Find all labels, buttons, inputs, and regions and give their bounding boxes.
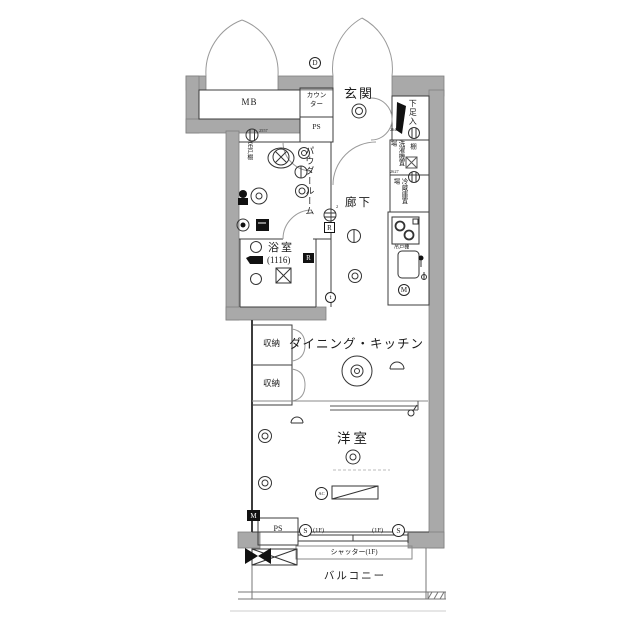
entrance-double-doors [333, 18, 393, 76]
balcony-label: バルコニー [296, 571, 414, 583]
boxed-m-marker: M [247, 510, 260, 521]
kitchen-hanging-cupboard-label: 吊戸棚 [394, 245, 409, 251]
room-dome-light-icon [291, 417, 303, 423]
faucet-black-icon [239, 190, 247, 198]
dk-dome-light-icon [390, 362, 404, 369]
mb-double-doors [206, 20, 278, 76]
fridge-place-label: 冷蔵庫置場 [391, 178, 407, 204]
storage-2-label: 収納 [252, 379, 291, 389]
fridge-tap-icon [409, 172, 420, 183]
circled-d-letter: D [312, 59, 317, 67]
powder-room-label: パウダールーム [304, 146, 314, 228]
s-right-letter: S [396, 526, 400, 535]
dk-ceiling-light-icon [342, 356, 372, 386]
circled-m-marker: M [398, 284, 410, 296]
floor-plan: MB カウン ター PS 玄関 下足入 吊戸棚 パウダールーム 廊下 洗濯機置場… [0, 0, 640, 640]
room-wall-light1-icon [259, 430, 272, 443]
meter-box-label: MB [199, 97, 300, 107]
hall-light-icon [349, 270, 362, 283]
floor-right-label: (1F) [372, 527, 383, 534]
fridge-code: 2627 [390, 170, 399, 175]
stove-icon [392, 217, 419, 244]
bath-light-icon [251, 242, 262, 253]
bath-r-marker: R [303, 253, 314, 263]
circled-t-letter: t [330, 294, 332, 301]
dining-kitchen-label: ダイニング・キッチン [289, 337, 424, 351]
wall-bottom-left [238, 532, 260, 548]
washer-place-label: 洗濯機置場 [388, 140, 404, 166]
ac-marker: AC [315, 487, 328, 500]
hall-r-marker: R [324, 222, 335, 233]
shutter-label: シャッター(1F) [297, 548, 411, 556]
entrance-light-icon [352, 104, 366, 118]
sink-icon [398, 251, 419, 278]
s-left-letter: S [303, 526, 307, 535]
western-room-label: 洋室 [337, 431, 370, 447]
counter-label: カウン ター [300, 91, 333, 109]
bathroom-module-label: (1116) [267, 255, 290, 265]
hallway-label: 廊下 [345, 197, 372, 210]
storage-1-label: 収納 [252, 339, 291, 349]
shoe-cabinet-doors [371, 98, 392, 140]
walls [186, 76, 444, 548]
shoe-cabinet-label: 下足入 [408, 99, 417, 139]
ps-upper-label: PS [300, 123, 333, 132]
washlet-panel-icon [256, 219, 269, 231]
boxed-m-letter: M [250, 512, 256, 520]
ps-lower-label: PS [258, 524, 298, 533]
bath-r-letter: R [306, 254, 311, 262]
room-light-icon [346, 450, 360, 464]
wall-right [429, 90, 444, 548]
entrance-hall-door [333, 142, 376, 185]
washer-code: 2641 [390, 128, 399, 133]
washbasin-icon [251, 188, 267, 204]
hall-panel-icon [324, 209, 336, 221]
cupboard-code: 2557 [259, 129, 268, 134]
shutter-s-left-marker: S [299, 524, 312, 537]
bathroom-label: 浴室 [268, 242, 294, 255]
hanging-cupboard-label: 吊戸棚 [245, 142, 252, 168]
floor-left-label: (1F) [313, 527, 324, 534]
entrance-label: 玄関 [335, 87, 383, 102]
shelf-label: 棚 [408, 143, 415, 155]
wall-bath-dk [226, 307, 326, 320]
wall-mb-bottom [186, 119, 300, 133]
bath-light2-icon [251, 274, 262, 285]
circled-m-letter: M [401, 286, 407, 294]
hall-panel-sup: 2 [336, 205, 338, 210]
south-window [298, 533, 408, 543]
hall-r-letter: R [327, 224, 332, 232]
circled-d-marker: D [309, 57, 321, 69]
shutter-s-right-marker: S [392, 524, 405, 537]
wall-bottom-right [408, 532, 444, 548]
circled-t-marker: t [325, 292, 336, 303]
sink-faucet-icon [419, 256, 424, 261]
room-wall-light2-icon [259, 477, 272, 490]
bath-faucet-icon [250, 256, 263, 264]
ac-letter: AC [318, 491, 324, 496]
storage-2-doors [292, 369, 305, 401]
